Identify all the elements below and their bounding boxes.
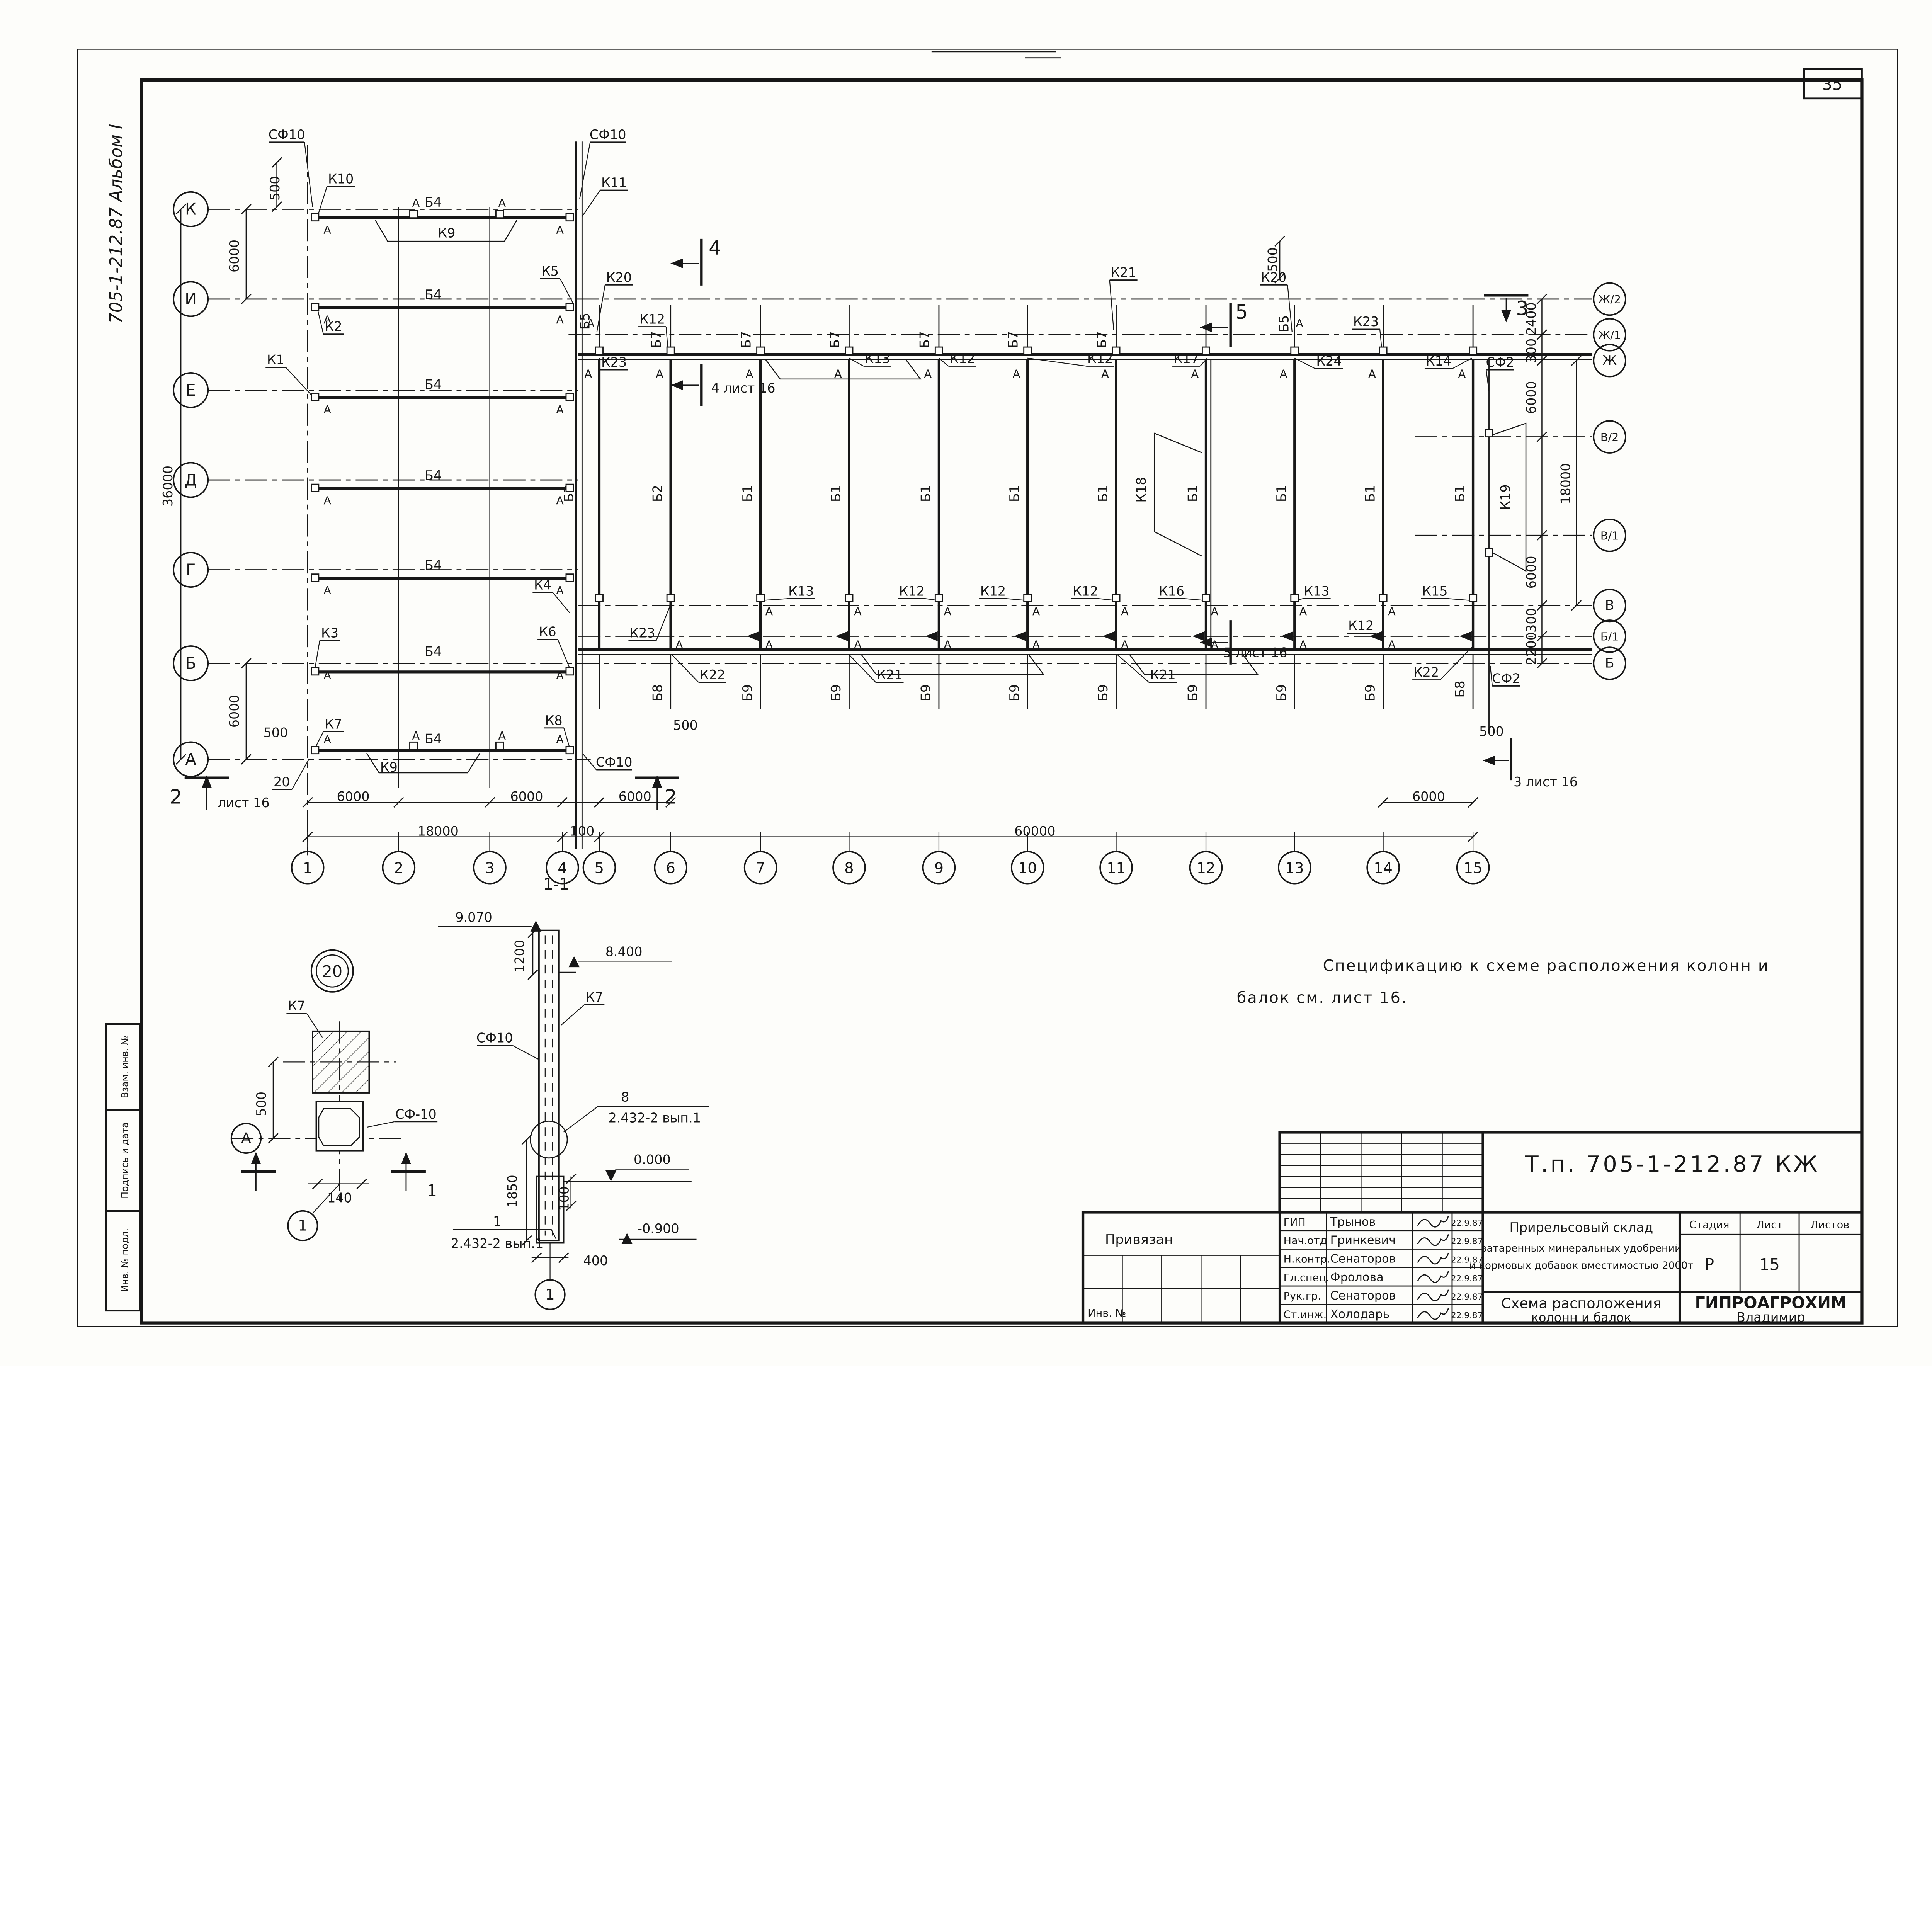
ref-label: К14 (1426, 354, 1451, 369)
axis-label: 1 (303, 860, 312, 877)
ref-label: К23 (1353, 314, 1379, 329)
ref-label: К20 (606, 270, 632, 285)
node-square (1112, 594, 1120, 602)
node-square (311, 303, 319, 311)
signature (1418, 1308, 1449, 1319)
node-mark-a: А (323, 584, 331, 597)
ref-label: К13 (788, 583, 814, 599)
ref-label: 4 (709, 237, 721, 260)
ref-label: К1 (267, 352, 284, 367)
node-square (845, 594, 853, 602)
node-square (845, 347, 853, 354)
node-square (566, 214, 573, 221)
node-arrow (1014, 631, 1026, 641)
node-square (1202, 347, 1209, 354)
ref-label: Б1 (1362, 485, 1378, 502)
axis-label: 7 (756, 860, 765, 877)
node-mark-a: А (412, 196, 420, 209)
axis-label: 14 (1374, 860, 1393, 877)
album-side-label: 705-1-212.87 Альбом I (106, 124, 126, 324)
tb-role: ГИП (1284, 1216, 1306, 1228)
ref-label: К23 (629, 626, 655, 641)
ref-label: К10 (328, 172, 354, 187)
ref-label: Б4 (425, 558, 442, 573)
ref-label: СФ10 (476, 1030, 513, 1045)
node-mark-a: А (556, 494, 564, 507)
ref-label: Б4 (425, 195, 442, 210)
node-square (1202, 594, 1209, 602)
node-square (311, 668, 319, 675)
tb-privyazan: Привязан (1105, 1232, 1173, 1248)
tb-org: ГИПРОАГРОХИМ (1695, 1293, 1847, 1312)
node-mark-a: А (746, 367, 753, 381)
ref-label: Б7 (1094, 331, 1109, 348)
axis-label: 8 (844, 860, 854, 877)
axis-label: Д (184, 471, 197, 489)
axis-label: И (185, 290, 197, 308)
tb-role: Рук.гр. (1284, 1290, 1321, 1302)
ref-label: Б1 (1185, 485, 1201, 502)
node-mark-a: А (323, 669, 331, 682)
ref-label: Б4 (425, 731, 442, 747)
node-mark-a: А (854, 638, 862, 651)
node-mark-a: А (1121, 638, 1129, 651)
ref-label: К16 (1159, 583, 1184, 599)
node-mark-a: А (323, 733, 331, 746)
ref-label: 500 (263, 725, 288, 740)
node-square (311, 484, 319, 492)
scanned-drawing-sheet: 35 705-1-212.87 Альбом I Взам. инв. № По… (0, 0, 1932, 1366)
signature (1418, 1253, 1449, 1264)
ref-label: К19 (1498, 484, 1513, 510)
title-block: Т.п. 705-1-212.87 КЖ Привязан Инв. № При… (1083, 1132, 1862, 1325)
ref-label: Б1 (1007, 485, 1022, 502)
axis-label: Ж/1 (1598, 328, 1621, 342)
ref-label: 6000 (1524, 556, 1539, 589)
node-square (1379, 594, 1387, 602)
ref-label: Б9 (1185, 684, 1201, 701)
ref-label: 400 (583, 1253, 608, 1268)
ref-label: К4 (534, 577, 551, 592)
ref-label: Б1 (1274, 485, 1289, 502)
ref-label: А (241, 1130, 251, 1147)
ref-label: К9 (380, 760, 398, 775)
tb-sheet-no: 15 (1759, 1255, 1780, 1274)
node-mark-a: А (1280, 367, 1287, 381)
node-square (311, 393, 319, 401)
generated-annotations: КИЕДГБАЖ/2Ж/1ЖВ/2В/1ВБ/1Б123456789101112… (160, 127, 1626, 1303)
node-mark-a: А (924, 367, 932, 381)
ref-label: 18000 (1558, 463, 1573, 504)
beam-lines (315, 141, 1592, 849)
axis-label: 12 (1197, 860, 1216, 877)
node-square (566, 393, 573, 401)
tb-stage: Р (1704, 1255, 1714, 1274)
ref-label: Б2 (650, 485, 665, 502)
ref-label: Б9 (1362, 684, 1378, 701)
ref-label: 2400 (1524, 302, 1539, 335)
node-arrow (835, 631, 848, 641)
tb-date: 22.9.87 (1451, 1218, 1483, 1228)
tb-name: Гринкевич (1330, 1234, 1396, 1247)
ref-label: 1 (427, 1182, 437, 1200)
ref-label: Б8 (650, 684, 665, 701)
ref-label: 2.432-2 вып.1 (609, 1110, 701, 1125)
node-square (311, 747, 319, 754)
ref-label: Б4 (425, 377, 442, 392)
node-square (935, 347, 942, 354)
ref-label: 6000 (1412, 789, 1445, 804)
tb-stage-label: Стадия (1689, 1219, 1730, 1231)
node-mark-a: А (1299, 638, 1307, 651)
node-arrow (1459, 631, 1472, 641)
tb-date: 22.9.87 (1451, 1311, 1483, 1320)
node-mark-a: А (765, 605, 773, 618)
axis-label: 10 (1018, 860, 1037, 877)
ref-label: 6000 (619, 789, 651, 804)
drawing-canvas: 35 705-1-212.87 Альбом I Взам. инв. № По… (0, 0, 1932, 1366)
ref-label: 1 (298, 1218, 307, 1235)
node-square (566, 747, 573, 754)
node-mark-a: А (323, 494, 331, 507)
ref-label: 4 лист 16 (711, 381, 776, 396)
ref-label: Б5 (1276, 315, 1291, 332)
node-square (566, 574, 573, 582)
tb-project: и кормовых добавок вместимостью 2000т (1469, 1260, 1694, 1271)
axis-label: 5 (595, 860, 604, 877)
node-mark-a: А (854, 605, 862, 618)
node-mark-a: А (1211, 638, 1219, 651)
ref-label: 2 (170, 786, 182, 809)
ref-label: Б7 (649, 331, 664, 348)
ref-label: К7 (325, 716, 342, 731)
ref-label: Б9 (828, 684, 844, 701)
ref-label: К12 (980, 583, 1006, 599)
node-square (1485, 549, 1493, 556)
signature (1418, 1234, 1449, 1245)
node-square (566, 668, 573, 675)
axis-label: 15 (1464, 860, 1483, 877)
node-square (667, 594, 674, 602)
node-square (410, 742, 417, 749)
node-square (311, 574, 319, 582)
axis-label: В (1605, 597, 1614, 613)
node-square (667, 347, 674, 354)
tb-date: 22.9.87 (1451, 1255, 1483, 1265)
ref-label: 60000 (1014, 823, 1055, 839)
ref-label: К17 (1173, 351, 1199, 366)
axis-label: Б/1 (1600, 630, 1619, 643)
node-arrow (925, 631, 938, 641)
tb-project: затаренных минеральных удобрений (1481, 1243, 1681, 1254)
node-mark-a: А (556, 733, 564, 746)
node-square (496, 211, 503, 218)
sheet-number: 35 (1822, 75, 1843, 94)
node-mark-a: А (1368, 367, 1376, 381)
node-mark-a: А (944, 638, 951, 651)
ref-label: 3 лист 16 (1514, 774, 1578, 789)
tb-sheet-label: Лист (1756, 1219, 1783, 1231)
ref-label: 9.070 (455, 910, 492, 925)
node-mark-a: А (1388, 638, 1396, 651)
ref-label: К21 (1150, 667, 1175, 682)
node-square (935, 594, 942, 602)
ref-label: Б4 (425, 287, 442, 302)
ref-label: 1 (493, 1214, 501, 1229)
node-arrow (1281, 631, 1293, 641)
ref-label: 36000 (160, 466, 175, 507)
node-mark-a: А (323, 313, 331, 327)
node-square (595, 594, 603, 602)
ref-label: К8 (545, 713, 563, 728)
tb-inv-no: Инв. № (1088, 1308, 1126, 1320)
ref-label: Б7 (1006, 331, 1021, 348)
axis-label: 2 (394, 860, 403, 877)
ref-label: Б7 (739, 331, 754, 348)
axis-label: Ж/2 (1598, 293, 1621, 306)
node-mark-a: А (765, 638, 773, 651)
ref-label: 1850 (505, 1175, 520, 1208)
node-mark-a: А (584, 367, 592, 381)
ref-label: 500 (254, 1092, 269, 1116)
ref-label: 20 (274, 774, 290, 789)
node-mark-a: А (498, 196, 506, 209)
ref-label: Б7 (827, 331, 842, 348)
ref-label: К12 (1073, 583, 1098, 599)
ref-label: Б9 (918, 684, 934, 701)
node-mark-a: А (1101, 367, 1109, 381)
note-line: балок см. лист 16. (1237, 989, 1408, 1007)
node-mark-a: А (675, 638, 683, 651)
axis-label: 6 (666, 860, 675, 877)
ref-label: К11 (601, 175, 627, 190)
axis-label: 9 (934, 860, 944, 877)
node-square (1469, 594, 1477, 602)
node-mark-a: А (944, 605, 951, 618)
axis-label: 13 (1285, 860, 1304, 877)
ref-label: 140 (327, 1190, 352, 1205)
ref-label: 100 (570, 823, 594, 839)
node-square (757, 594, 764, 602)
tb-name: Сенаторов (1330, 1289, 1396, 1303)
node-mark-a: А (323, 403, 331, 416)
ref-label: 500 (1265, 247, 1281, 272)
node-mark-a: А (556, 403, 564, 416)
tb-org-city: Владимир (1736, 1310, 1805, 1325)
node-mark-a: А (1013, 367, 1020, 381)
ref-label: Б1 (828, 485, 844, 502)
ref-label: К13 (1304, 583, 1330, 599)
ref-label: Б9 (1095, 684, 1111, 701)
ref-label: Б9 (1007, 684, 1022, 701)
node-mark-a: А (1388, 605, 1396, 618)
node-mark-a: А (498, 729, 506, 742)
ref-label: К23 (601, 355, 627, 370)
side-strips: Взам. инв. № Подпись и дата Инв. № подл. (106, 1024, 140, 1311)
ref-label: 500 (1479, 724, 1504, 739)
ref-label: -0.900 (638, 1221, 679, 1236)
node-square (1291, 347, 1298, 354)
node-mark-a: А (1191, 367, 1199, 381)
node-square (1024, 347, 1031, 354)
tb-doc-title: колонн и балок (1531, 1310, 1631, 1325)
ref-label: К9 (438, 226, 456, 241)
ref-label: К3 (321, 626, 338, 641)
node-mark-a: А (556, 313, 564, 327)
ref-label: СФ2 (1486, 355, 1514, 370)
node-square (1469, 347, 1477, 354)
ref-label: СФ10 (269, 127, 305, 142)
ref-label: К6 (539, 624, 556, 639)
ref-label: Б9 (1274, 684, 1289, 701)
axis-label: А (185, 750, 196, 769)
ref-label: Б1 (918, 485, 934, 502)
ref-label: 8.400 (605, 944, 643, 959)
ref-label: Б4 (425, 468, 442, 483)
tb-name: Фролова (1330, 1271, 1384, 1284)
node-mark-a: А (1458, 367, 1466, 381)
axis-label: К (185, 200, 196, 219)
ref-label: СФ-10 (395, 1107, 437, 1122)
ref-label: К24 (1316, 354, 1342, 369)
tb-role: Нач.отд (1284, 1235, 1327, 1247)
tb-date: 22.9.87 (1451, 1292, 1483, 1302)
tb-name: Холодарь (1330, 1308, 1390, 1321)
ref-label: К21 (877, 667, 902, 682)
tb-role: Гл.спец. (1284, 1272, 1330, 1284)
ref-label: 5 лист 16 (1223, 645, 1287, 660)
tb-role: Н.контр. (1284, 1254, 1330, 1266)
node-square (496, 742, 503, 749)
ref-label: Б7 (917, 331, 932, 348)
node-mark-a: А (1121, 605, 1129, 618)
node-square (311, 214, 319, 221)
ref-label: К12 (1087, 351, 1113, 366)
note-line: Спецификацию к схеме расположения колонн… (1323, 957, 1769, 975)
ref-label: К7 (288, 998, 305, 1014)
strip-label: Инв. № подл. (119, 1228, 130, 1292)
strip-label: Подпись и дата (119, 1122, 130, 1199)
node-square (1485, 429, 1493, 437)
ref-label: СФ10 (590, 127, 626, 142)
node-square (410, 211, 417, 218)
ref-label: Б8 (1452, 680, 1468, 697)
node-mark-a: А (587, 317, 595, 330)
node-arrow (1192, 631, 1205, 641)
axis-label: Б (1605, 655, 1614, 671)
ref-label: К12 (639, 312, 665, 327)
ref-label: 5 (1235, 301, 1248, 324)
ref-label: 6000 (337, 789, 369, 804)
ref-label: 8 (621, 1089, 629, 1104)
node-square (566, 303, 573, 311)
tb-date: 22.9.87 (1451, 1237, 1483, 1247)
tb-name: Трынов (1330, 1215, 1376, 1229)
signature (1418, 1216, 1449, 1227)
ref-label: 300 (1524, 338, 1539, 363)
ref-label: 500 (673, 718, 698, 733)
tb-doc-title: Схема расположения (1501, 1295, 1662, 1311)
ref-label: 20 (322, 963, 343, 981)
node-square (757, 347, 764, 354)
ref-label: К22 (700, 667, 725, 682)
ref-label: Б9 (740, 684, 755, 701)
ref-label: К15 (1422, 583, 1447, 599)
ref-label: К13 (865, 351, 890, 366)
node-mark-a: А (556, 584, 564, 597)
node-mark-a: А (556, 223, 564, 236)
node-square (595, 347, 603, 354)
ref-label: 1200 (512, 940, 527, 973)
ref-label: Б1 (1095, 485, 1111, 502)
ref-label: 500 (267, 176, 282, 201)
ref-label: Б4 (425, 644, 442, 659)
axis-label: В/2 (1600, 431, 1619, 444)
axis-label: Г (186, 561, 196, 579)
node-mark-a: А (834, 367, 842, 381)
node-mark-a: А (1032, 638, 1040, 651)
section-cut-markers (185, 239, 1529, 810)
ref-label: 1-1 (543, 875, 570, 894)
axis-label: Б (185, 654, 196, 673)
axis-label: В/1 (1600, 529, 1619, 542)
node-square (1291, 594, 1298, 602)
strip-label: Взам. инв. № (119, 1036, 130, 1098)
ref-label: К5 (541, 264, 559, 279)
leader-brackets (367, 220, 1526, 773)
ref-label: К7 (586, 990, 603, 1005)
ref-label: К12 (899, 583, 925, 599)
node-square (1024, 594, 1031, 602)
ref-label: 2200 (1524, 632, 1539, 665)
node-mark-a: А (412, 729, 420, 742)
note: Спецификацию к схеме расположения колонн… (1237, 957, 1769, 1007)
ref-label: К18 (1134, 477, 1149, 502)
node-mark-a: А (1296, 317, 1303, 330)
node-mark-a: А (323, 223, 331, 236)
signature (1418, 1271, 1449, 1283)
ref-label: К12 (949, 351, 975, 366)
ref-label: К21 (1111, 265, 1136, 280)
ref-label: Б1 (740, 485, 755, 502)
tb-role: Ст.инж. (1284, 1309, 1327, 1321)
node-mark-a: А (1211, 605, 1219, 618)
axis-label: Ж (1602, 352, 1617, 368)
axis-label: Е (186, 381, 196, 400)
tb-project: Прирельсовый склад (1510, 1220, 1653, 1235)
axis-label: 3 (485, 860, 494, 877)
tb-name: Сенаторов (1330, 1252, 1396, 1266)
node-mark-a: А (1299, 605, 1307, 618)
tb-sheets-label: Листов (1810, 1219, 1849, 1231)
node-mark-a: А (656, 367, 663, 381)
axis-label: 4 (558, 860, 567, 877)
tb-designation: Т.п. 705-1-212.87 КЖ (1525, 1151, 1820, 1177)
node-arrow (747, 631, 759, 641)
node-square (566, 484, 573, 492)
axis-label: 11 (1107, 860, 1126, 877)
ref-label: СФ2 (1492, 671, 1520, 686)
ref-label: 1 (545, 1286, 554, 1303)
ref-label: Б1 (1452, 485, 1468, 502)
signature (1418, 1290, 1449, 1301)
ref-label: 6000 (510, 789, 543, 804)
ref-label: К12 (1348, 618, 1374, 633)
ref-label: 6000 (227, 695, 242, 728)
node-arrow (1103, 631, 1115, 641)
ref-label: СФ10 (596, 755, 633, 770)
ref-label: лист 16 (218, 795, 270, 810)
